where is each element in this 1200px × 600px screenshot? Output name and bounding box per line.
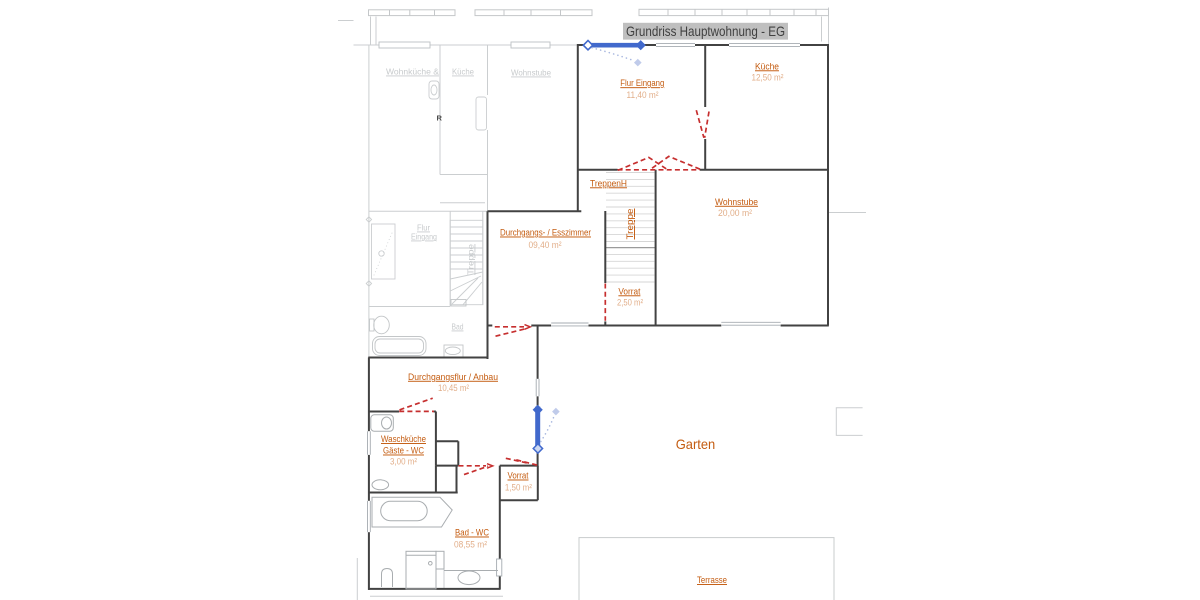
- svg-text:TreppenH: TreppenH: [590, 178, 627, 189]
- svg-text:1,50 m²: 1,50 m²: [505, 483, 533, 494]
- svg-text:10,45 m²: 10,45 m²: [438, 383, 470, 394]
- svg-text:Durchgangsflur / Anbau: Durchgangsflur / Anbau: [408, 372, 498, 383]
- svg-text:Terrasse: Terrasse: [697, 575, 727, 586]
- svg-text:Küche: Küche: [452, 67, 474, 77]
- svg-text:Gäste - WC: Gäste - WC: [383, 446, 424, 457]
- svg-text:08,55 m²: 08,55 m²: [454, 540, 488, 551]
- svg-text:Grundriss Hauptwohnung - EG: Grundriss Hauptwohnung - EG: [626, 24, 785, 39]
- svg-text:Wohnstube: Wohnstube: [715, 197, 758, 208]
- svg-text:3,00 m²: 3,00 m²: [390, 457, 418, 468]
- svg-text:Treppe: Treppe: [625, 209, 636, 240]
- svg-text:Garten: Garten: [676, 436, 716, 452]
- svg-text:Flur Eingang: Flur Eingang: [620, 78, 664, 89]
- svg-text:Vorrat: Vorrat: [618, 286, 640, 297]
- svg-text:Vorrat: Vorrat: [508, 471, 529, 482]
- svg-text:Waschküche: Waschküche: [381, 434, 426, 445]
- svg-text:Bad - WC: Bad - WC: [455, 528, 489, 539]
- svg-text:20,00 m²: 20,00 m²: [718, 208, 753, 219]
- svg-text:Bad: Bad: [452, 322, 464, 332]
- svg-text:Eingang: Eingang: [411, 232, 437, 242]
- svg-text:Durchgangs- / Esszimmer: Durchgangs- / Esszimmer: [500, 228, 592, 239]
- svg-text:09,40 m²: 09,40 m²: [529, 240, 563, 251]
- svg-text:12,50 m²: 12,50 m²: [752, 72, 785, 83]
- svg-text:Küche: Küche: [755, 61, 779, 72]
- svg-text:Wohnstube: Wohnstube: [511, 68, 551, 78]
- svg-text:R: R: [437, 114, 443, 123]
- svg-text:Wohnküche &: Wohnküche &: [386, 67, 439, 77]
- svg-text:11,40 m²: 11,40 m²: [627, 90, 660, 101]
- svg-text:2,50 m²: 2,50 m²: [617, 298, 644, 309]
- svg-text:Treppe: Treppe: [466, 244, 476, 275]
